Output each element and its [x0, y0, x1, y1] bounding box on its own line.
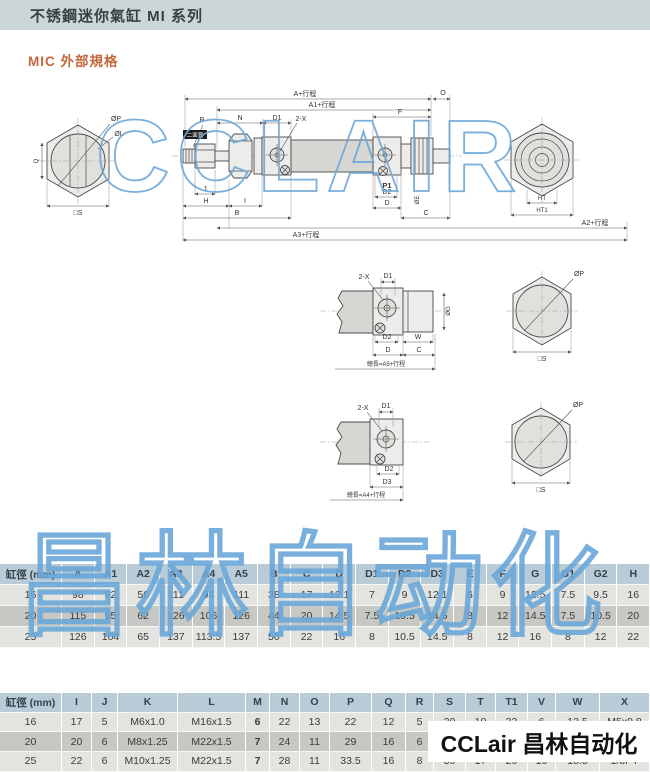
table-cell: 17 [62, 713, 92, 732]
dim-label: P1 [382, 181, 391, 190]
rear-cap-hex-a4: ØP □S [505, 402, 583, 494]
table-header-cell: E [454, 564, 487, 584]
dim-label: HT [538, 196, 546, 202]
table-cell: 104 [95, 627, 128, 647]
table-cell: 126 [160, 606, 193, 626]
table-cell: 98 [62, 585, 95, 605]
table-cell: 25 [0, 627, 62, 647]
dim-label: C [416, 347, 421, 354]
table-header-cell: G [519, 564, 552, 584]
table-header-cell: W [556, 693, 600, 712]
table-cell: 9.5 [585, 585, 618, 605]
table-header-cell: A5 [225, 564, 258, 584]
table-cell: 7 [356, 585, 389, 605]
table-cell: 56 [127, 585, 160, 605]
table-cell: 22 [270, 713, 300, 732]
table-cell: 111 [160, 585, 193, 605]
table-cell: 6 [454, 585, 487, 605]
table-cell: 17 [291, 585, 324, 605]
table-cell: 20 [617, 606, 650, 626]
table-cell: 16 [0, 713, 62, 732]
table-header-cell: A [62, 564, 95, 584]
dim-label: 2-X [296, 116, 307, 123]
table-header-cell: T [466, 693, 496, 712]
table-cell: 12 [487, 606, 520, 626]
table-header-cell: V [528, 693, 556, 712]
dim-label: ØG [446, 306, 452, 316]
technical-drawing: A+行程 O A1+行程 F N D1 2-X R 二面寬 J H I B A2… [0, 0, 650, 558]
dim-label: A2+行程 [582, 218, 609, 227]
dim-label: O [440, 90, 446, 97]
table-cell: 5 [92, 713, 118, 732]
table-cell: 94 [193, 585, 226, 605]
table-cell: 50 [258, 627, 291, 647]
dim-label: D [385, 347, 390, 354]
table-cell: 16 [323, 627, 356, 647]
dim-label: C [423, 210, 428, 217]
table-header-cell: Q [372, 693, 406, 712]
dim-label: Q [34, 158, 40, 163]
table-cell: 62 [127, 606, 160, 626]
table-cell: 10.5 [389, 627, 422, 647]
table-cell: 20 [62, 732, 92, 751]
table-header-cell: D3 [421, 564, 454, 584]
dim-label: □S [538, 356, 547, 363]
dim-label: D1 [382, 403, 391, 410]
table-cell: 137 [225, 627, 258, 647]
table-cell: M22x1.5 [178, 732, 246, 751]
table-cell: 126 [62, 627, 95, 647]
dim-label: D2 [383, 189, 392, 196]
table-cell: 20 [0, 606, 62, 626]
table-header-cell: X [600, 693, 650, 712]
dim-label: ØP [574, 271, 584, 278]
table-cell: 16 [519, 627, 552, 647]
table-header-cell: R [406, 693, 434, 712]
table-header-cell: F [487, 564, 520, 584]
table-header-cell: D [323, 564, 356, 584]
dim-label: □S [74, 210, 83, 217]
table-cell: 38 [258, 585, 291, 605]
table-cell: 14.5 [323, 606, 356, 626]
table-header-cell: N [270, 693, 300, 712]
dim-label: D3 [383, 479, 392, 486]
table-cell: 20 [0, 732, 62, 751]
table-cell: 8 [552, 627, 585, 647]
table-header-cell: M [246, 693, 270, 712]
rear-hex-end-view: HT HT1 [504, 117, 580, 216]
dim-label: A3+行程 [293, 230, 320, 239]
table-cell: 115 [62, 606, 95, 626]
dim-label: J [203, 186, 207, 193]
rear-cap-view-a5: 2-X D1 ØG D2 W D C 總長=A5+行程 [320, 273, 452, 370]
table-row: 201159562126106126442014.57.510.514.5812… [0, 606, 650, 627]
table-cell: 12.1 [323, 585, 356, 605]
table-cell: 12 [372, 713, 406, 732]
table-header-cell: O [300, 693, 330, 712]
dim-label: HT1 [536, 208, 548, 214]
table-cell: 111 [225, 585, 258, 605]
dim-label: H [203, 198, 208, 205]
table-cell: 11 [300, 732, 330, 751]
table-cell: 29 [330, 732, 372, 751]
dim-label: A1+行程 [309, 100, 336, 109]
table-cell: 20 [291, 606, 324, 626]
dim-label: D1 [384, 273, 393, 280]
table-header-cell: L [178, 693, 246, 712]
table-cell: 7.5 [356, 606, 389, 626]
table-cell: 6 [92, 732, 118, 751]
dim-label: 2-X [358, 405, 369, 412]
dim-label: □S [537, 487, 546, 494]
table-cell: 7 [246, 732, 270, 751]
dim-label: D2 [383, 334, 392, 341]
table-header-cell: G1 [552, 564, 585, 584]
table-row: 1698825611194111381712.17912.16912.57.59… [0, 585, 650, 606]
dim-label: ØL [114, 131, 123, 138]
table-cell: 13 [300, 713, 330, 732]
table-header-row: 缸徑 (mm)IJKLMNOPQRSTT1VWX [0, 693, 650, 713]
table-cell: M8x1.25 [118, 732, 178, 751]
dim-label: ØE [415, 196, 421, 205]
table-cell: M6x1.0 [118, 713, 178, 732]
table-cell: 10.5 [585, 606, 618, 626]
table-cell: 113.5 [193, 627, 226, 647]
table-cell: 16 [617, 585, 650, 605]
table-cell: 8 [356, 627, 389, 647]
table-cell: 44 [258, 606, 291, 626]
table-cell: 22 [617, 627, 650, 647]
dim-label: B [235, 210, 240, 217]
table-header-cell: A2 [127, 564, 160, 584]
table-cell: 9 [389, 585, 422, 605]
table-cell: 14.5 [421, 606, 454, 626]
table-header-cell: A1 [95, 564, 128, 584]
front-hex-end-view: ØP ØL Q □S [34, 116, 124, 217]
table-cell: 126 [225, 606, 258, 626]
table-cell: 24 [270, 732, 300, 751]
table-cell: 22 [330, 713, 372, 732]
brand-logo-overlay: CCLair 昌林自动化 [428, 721, 650, 762]
dim-label: W [415, 334, 422, 341]
table-cell: 16 [0, 585, 62, 605]
table-header-cell: G2 [585, 564, 618, 584]
table-cell: 7.5 [552, 585, 585, 605]
dim-label: D1 [273, 115, 282, 122]
table-header-cell: 缸徑 (mm) [0, 693, 62, 712]
table-cell: 10.5 [389, 606, 422, 626]
table-header-cell: J [92, 693, 118, 712]
table-cell: 95 [95, 606, 128, 626]
table-cell: 14.5 [421, 627, 454, 647]
dimension-table-1: 缸徑 (mm)AA1A2A3A4A5BCDD1D2D3EFGG1G2H16988… [0, 564, 650, 648]
dim-label: ØP [111, 116, 121, 123]
table-cell: 6 [246, 713, 270, 732]
table-header-cell: B [258, 564, 291, 584]
table-header-cell: P [330, 693, 372, 712]
dim-label: ØP [573, 402, 583, 409]
table-header-cell: 缸徑 (mm) [0, 564, 62, 584]
rear-cap-hex-a5: ØP □S [506, 271, 584, 363]
table-header-cell: A4 [193, 564, 226, 584]
table-cell: 16 [372, 732, 406, 751]
flats-label: 二面寬 [187, 131, 204, 139]
table-cell: 9 [487, 585, 520, 605]
table-row: 2512610465137113.5137502216810.514.58121… [0, 627, 650, 648]
table-header-cell: H [617, 564, 650, 584]
table-header-cell: S [434, 693, 466, 712]
table-cell: 137 [160, 627, 193, 647]
dim-label: D2 [385, 466, 394, 473]
dim-label: R [199, 117, 204, 124]
table-header-cell: A3 [160, 564, 193, 584]
table-header-cell: K [118, 693, 178, 712]
table-header-cell: I [62, 693, 92, 712]
dim-label: D [384, 200, 389, 207]
table-header-cell: T1 [496, 693, 528, 712]
dim-label: A+行程 [294, 89, 317, 98]
table-cell: 8 [454, 606, 487, 626]
table-cell: 82 [95, 585, 128, 605]
table-cell: 22 [291, 627, 324, 647]
table-header-cell: D2 [389, 564, 422, 584]
dim-label: 總長=A4+行程 [347, 491, 385, 499]
table-cell: 12.5 [519, 585, 552, 605]
table-cell: 14.5 [519, 606, 552, 626]
table-cell: 12.1 [421, 585, 454, 605]
table-cell: 12 [487, 627, 520, 647]
table-header-cell: D1 [356, 564, 389, 584]
table-cell: M16x1.5 [178, 713, 246, 732]
rear-cap-view-a4: 2-X D1 D2 D3 總長=A4+行程 [320, 403, 430, 501]
table-cell: 7.5 [552, 606, 585, 626]
table-cell: 12 [585, 627, 618, 647]
table-header-row: 缸徑 (mm)AA1A2A3A4A5BCDD1D2D3EFGG1G2H [0, 564, 650, 585]
dim-label: I [244, 198, 246, 205]
dim-label: 總長=A5+行程 [367, 360, 405, 368]
dim-label: F [398, 109, 402, 116]
dim-label: 2-X [359, 274, 370, 281]
dim-label: N [237, 115, 242, 122]
table-cell: 8 [454, 627, 487, 647]
table-cell: 65 [127, 627, 160, 647]
table-cell: 106 [193, 606, 226, 626]
table-header-cell: C [291, 564, 324, 584]
